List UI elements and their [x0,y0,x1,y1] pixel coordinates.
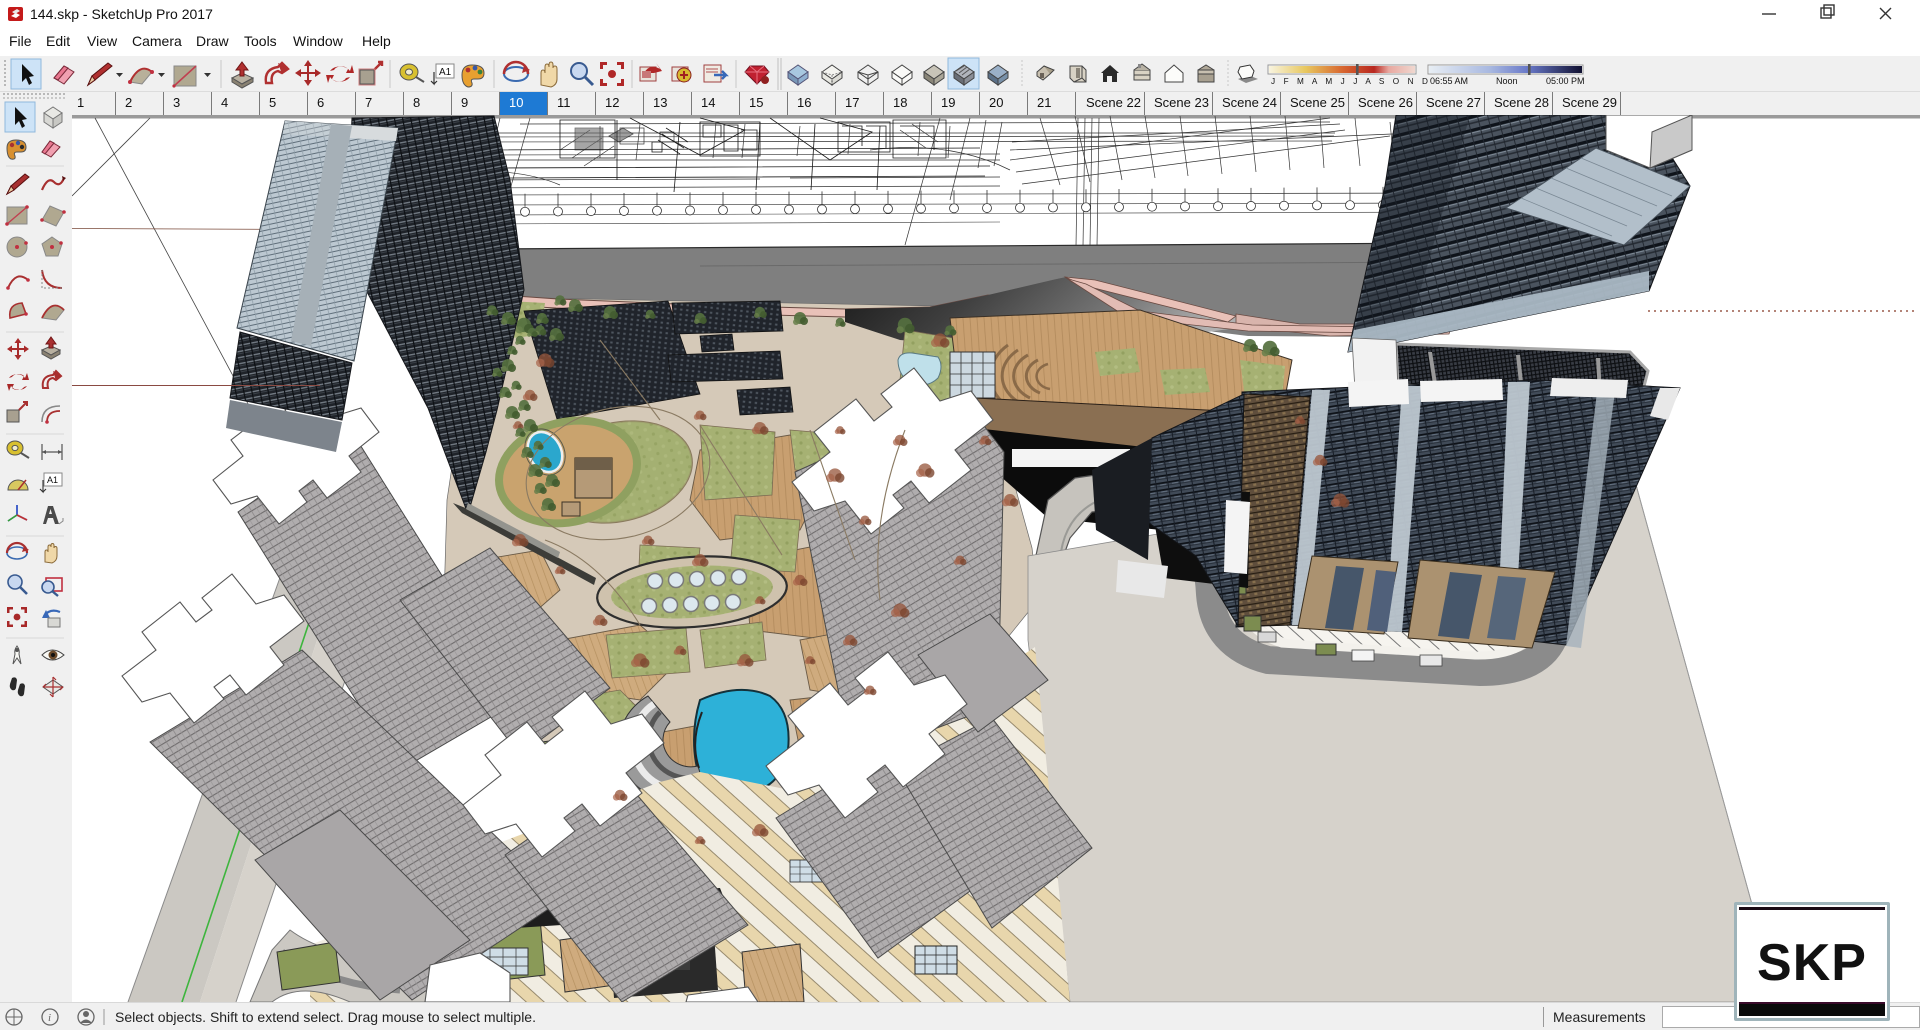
svg-text:06:55 AM: 06:55 AM [1430,76,1468,86]
svg-text:J F M A M J J A S O N D: J F M A M J J A S O N D [1271,77,1431,86]
svg-text:i: i [48,1012,51,1024]
svg-text:05:00 PM: 05:00 PM [1546,76,1585,86]
svg-text:A1: A1 [47,475,58,485]
svg-text:A1: A1 [439,67,452,78]
svg-text:Noon: Noon [1496,76,1518,86]
